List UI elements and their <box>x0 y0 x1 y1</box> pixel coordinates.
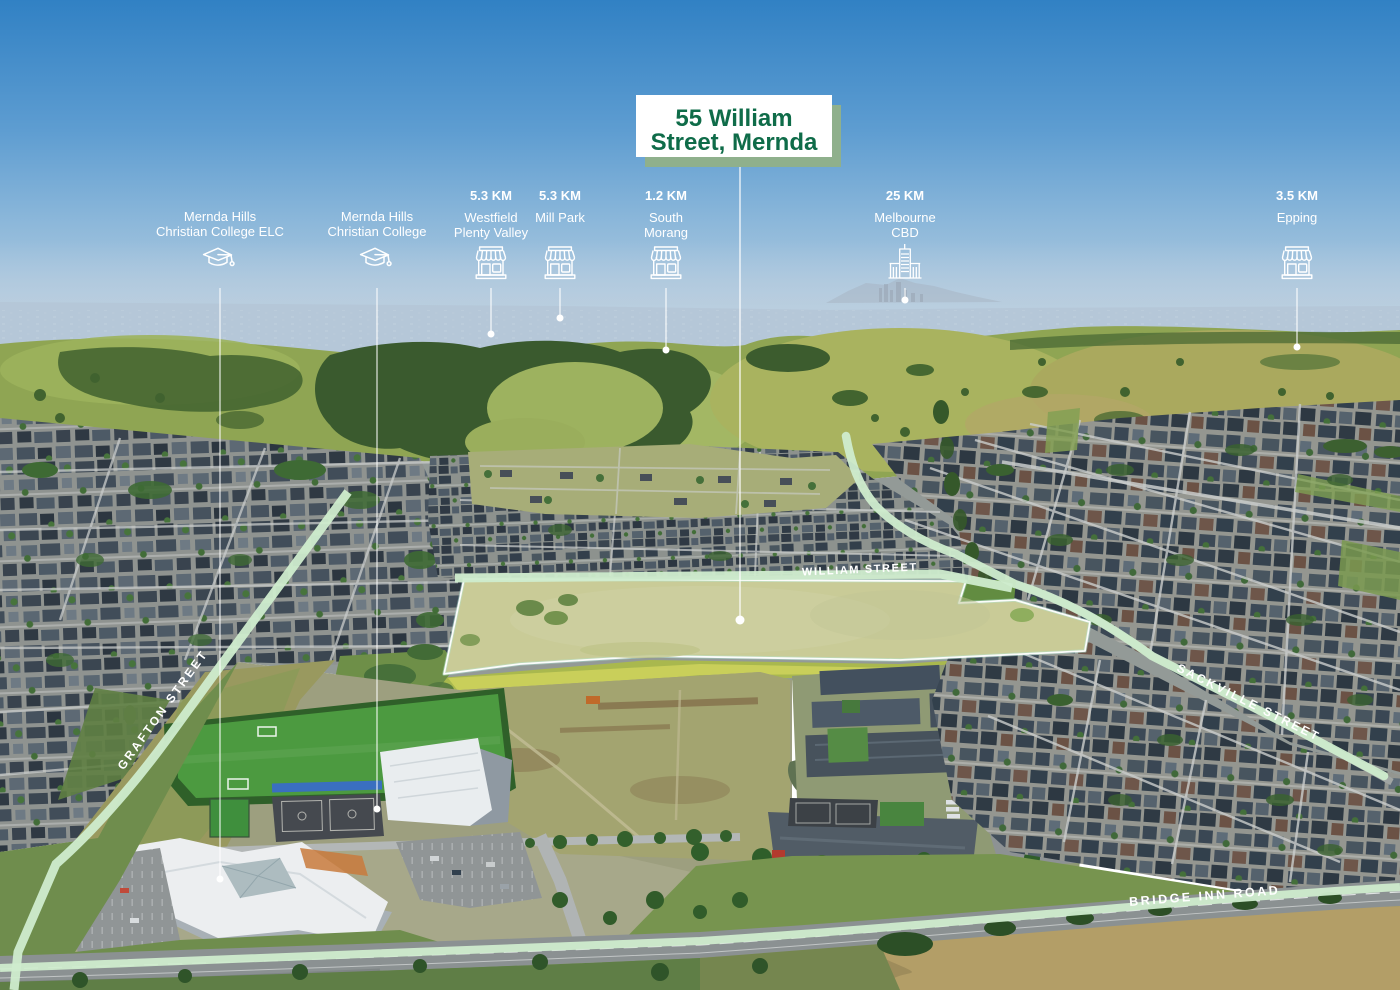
svg-text:CBD: CBD <box>891 225 918 240</box>
svg-text:Mernda Hills: Mernda Hills <box>184 209 257 224</box>
svg-text:5.3 KM: 5.3 KM <box>539 188 581 203</box>
svg-text:Street, Mernda: Street, Mernda <box>651 129 818 156</box>
svg-text:Westfield: Westfield <box>464 210 517 225</box>
svg-text:Mill Park: Mill Park <box>535 210 585 225</box>
svg-text:South: South <box>649 210 683 225</box>
svg-text:Christian College: Christian College <box>328 224 427 239</box>
svg-text:5.3 KM: 5.3 KM <box>470 188 512 203</box>
svg-text:Mernda Hills: Mernda Hills <box>341 209 414 224</box>
svg-text:Epping: Epping <box>1277 210 1317 225</box>
svg-text:Melbourne: Melbourne <box>874 210 935 225</box>
svg-text:3.5 KM: 3.5 KM <box>1276 188 1318 203</box>
svg-text:Plenty Valley: Plenty Valley <box>454 225 529 240</box>
svg-text:55 William: 55 William <box>675 105 792 132</box>
svg-text:1.2 KM: 1.2 KM <box>645 188 687 203</box>
svg-text:25 KM: 25 KM <box>886 188 924 203</box>
svg-text:Christian College ELC: Christian College ELC <box>156 224 284 239</box>
svg-text:Morang: Morang <box>644 225 688 240</box>
